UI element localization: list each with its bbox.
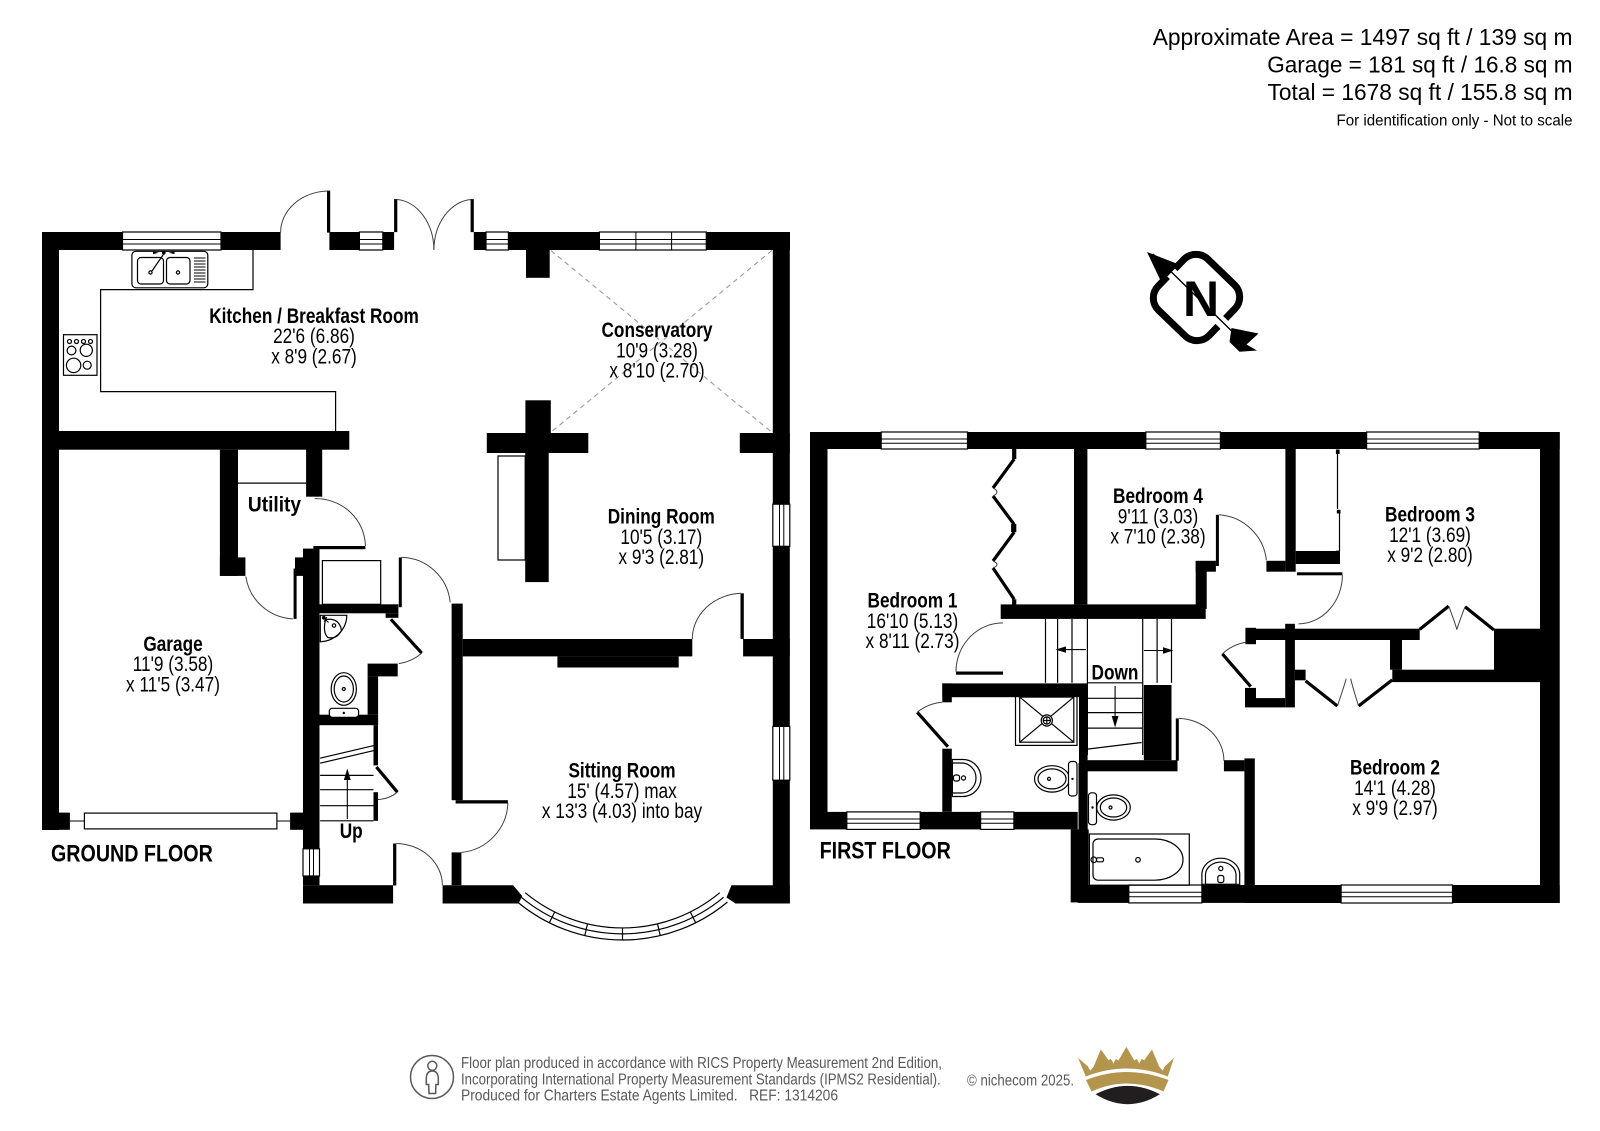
svg-text:Garage = 181 sq ft / 16.8 sq m: Garage = 181 sq ft / 16.8 sq m [1267,51,1572,77]
svg-text:Produced for Charters Estate A: Produced for Charters Estate Agents Limi… [461,1088,838,1105]
svg-text:Floor plan produced in accorda: Floor plan produced in accordance with R… [461,1055,942,1072]
svg-text:Up: Up [340,820,363,843]
svg-text:FIRST FLOOR: FIRST FLOOR [820,837,951,864]
svg-text:x 9'9 (2.97): x 9'9 (2.97) [1352,797,1438,820]
svg-text:x 8'9 (2.67): x 8'9 (2.67) [271,345,357,368]
svg-text:x 8'10 (2.70): x 8'10 (2.70) [609,360,704,383]
svg-text:x 8'11 (2.73): x 8'11 (2.73) [866,630,960,653]
svg-text:N: N [1183,271,1219,327]
svg-text:x 7'10 (2.38): x 7'10 (2.38) [1110,526,1205,549]
svg-text:x 11'5 (3.47): x 11'5 (3.47) [126,674,220,697]
svg-text:Down: Down [1092,662,1139,685]
svg-text:For identification only - Not: For identification only - Not to scale [1337,113,1573,130]
svg-text:Approximate Area = 1497 sq ft: Approximate Area = 1497 sq ft / 139 sq m [1153,24,1573,50]
svg-text:GROUND FLOOR: GROUND FLOOR [51,840,213,867]
svg-text:© nichecom 2025.: © nichecom 2025. [967,1073,1074,1090]
svg-text:Incorporating International Pr: Incorporating International Property Mea… [461,1071,941,1088]
svg-text:Utility: Utility [248,494,301,517]
svg-text:x 13'3 (4.03) into bay: x 13'3 (4.03) into bay [542,800,703,823]
svg-text:Total = 1678 sq ft / 155.8 sq: Total = 1678 sq ft / 155.8 sq m [1268,79,1573,105]
svg-text:x 9'2 (2.80): x 9'2 (2.80) [1387,544,1473,567]
svg-text:x 9'3 (2.81): x 9'3 (2.81) [619,546,705,569]
